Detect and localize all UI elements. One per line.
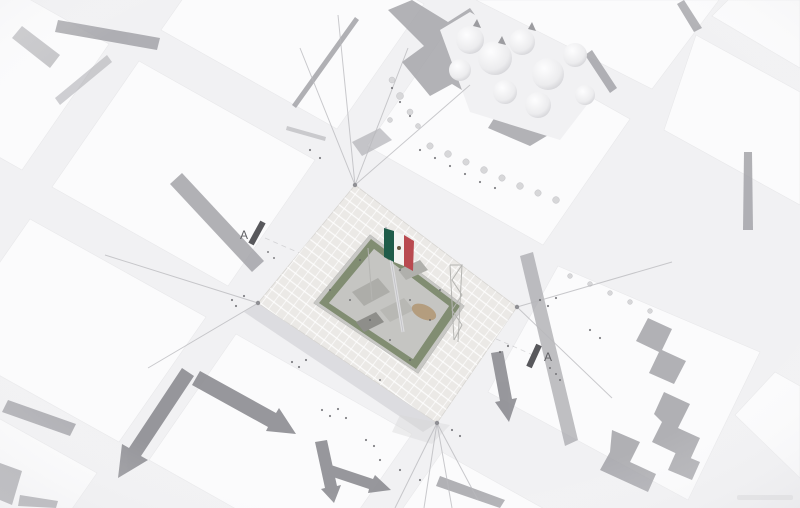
site-plan-render: A A xyxy=(0,0,800,508)
vignette-overlay xyxy=(0,0,800,508)
render-canvas: A A xyxy=(0,0,800,508)
